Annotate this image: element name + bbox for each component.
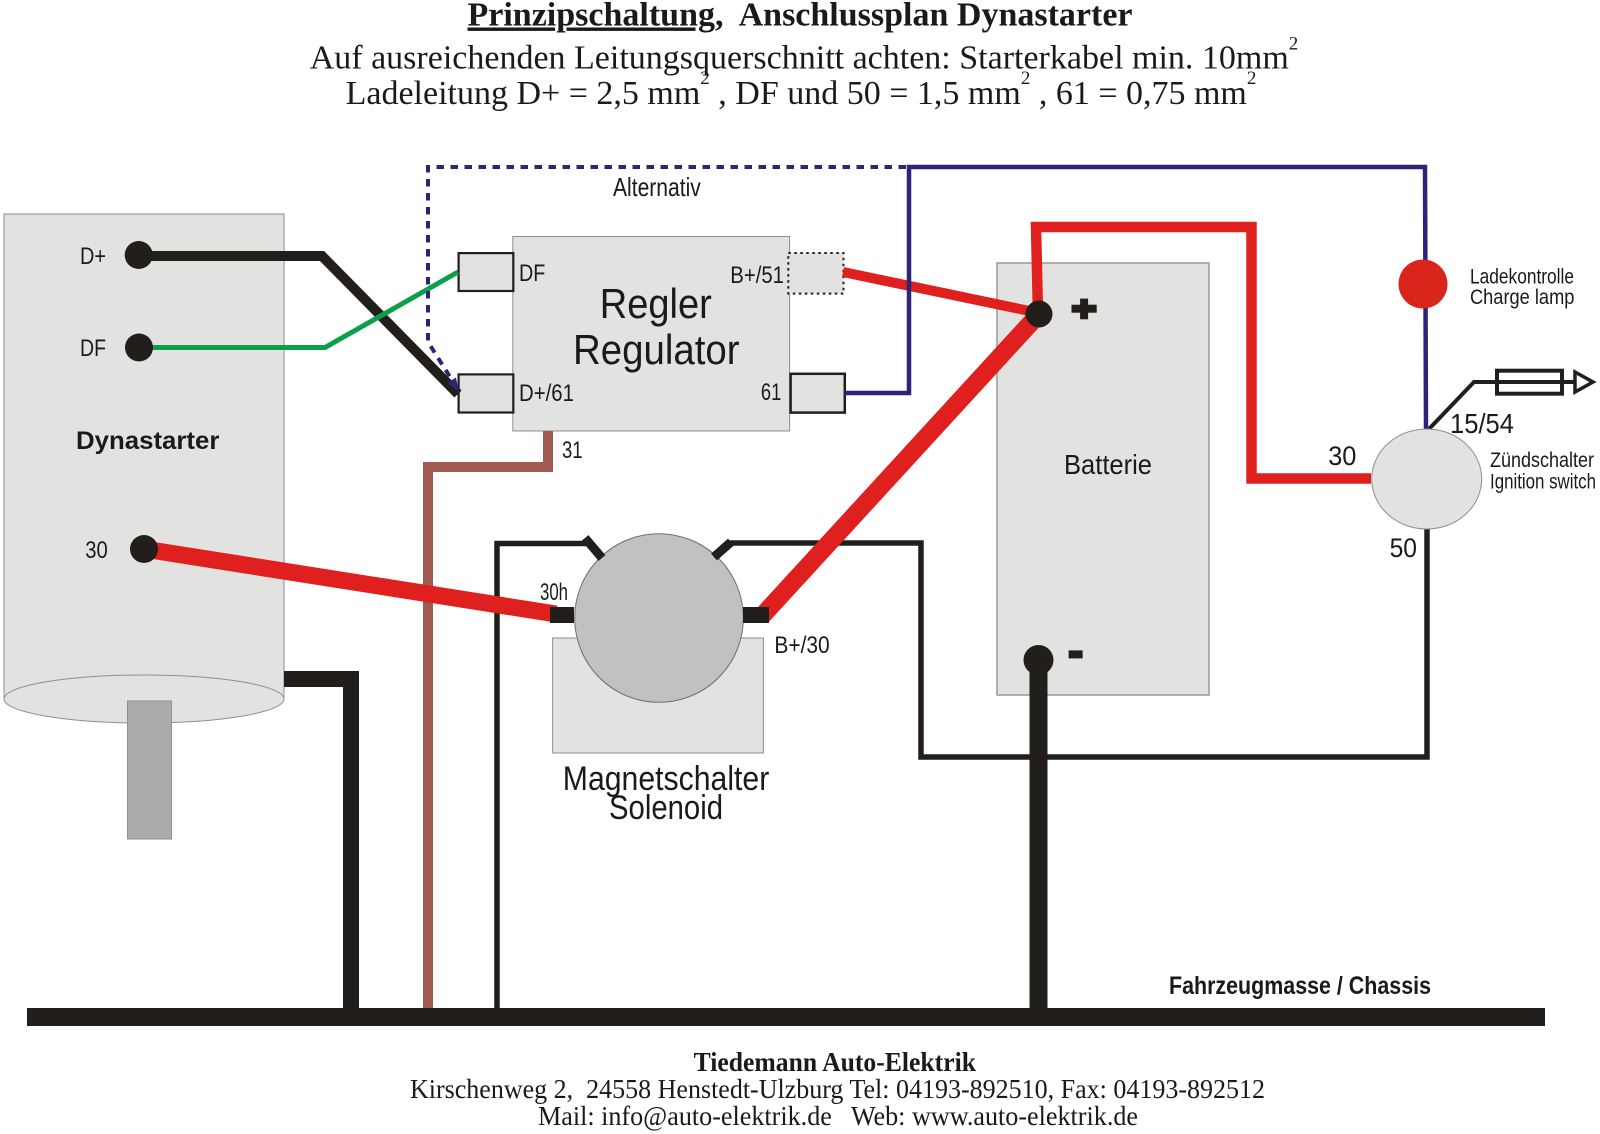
svg-text:DF: DF (80, 335, 106, 362)
svg-text:30h: 30h (540, 579, 568, 606)
svg-text:Solenoid: Solenoid (609, 789, 723, 827)
svg-text:50: 50 (1390, 533, 1417, 563)
svg-text:Tiedemann Auto-Elektrik: Tiedemann Auto-Elektrik (694, 1047, 976, 1077)
svg-text:Ignition switch: Ignition switch (1490, 471, 1596, 494)
svg-text:DF: DF (519, 260, 545, 287)
svg-text:31: 31 (562, 437, 583, 464)
svg-text:Auf ausreichenden Leitungsquer: Auf ausreichenden Leitungsquerschnitt ac… (310, 34, 1299, 77)
svg-text:61: 61 (761, 379, 781, 406)
svg-text:30: 30 (1328, 441, 1356, 471)
svg-text:Ladeleitung D+ = 2,5 mm2 , DF: Ladeleitung D+ = 2,5 mm2 , DF und 50 = 1… (346, 68, 1257, 112)
svg-text:15/54: 15/54 (1450, 408, 1514, 439)
svg-text:D+/61: D+/61 (519, 380, 574, 407)
svg-text:B+/51: B+/51 (730, 262, 784, 289)
svg-text:Prinzipschaltung, Anschlusspl: Prinzipschaltung, Anschlussplan Dynastar… (468, 0, 1133, 34)
svg-text:Batterie: Batterie (1064, 449, 1152, 480)
svg-text:Fahrzeugmasse / Chassis: Fahrzeugmasse / Chassis (1169, 972, 1431, 1000)
svg-text:Dynastarter: Dynastarter (76, 427, 220, 455)
svg-text:Regler: Regler (600, 280, 712, 327)
svg-text:Charge lamp: Charge lamp (1470, 286, 1574, 309)
svg-text:Zündschalter: Zündschalter (1490, 449, 1594, 472)
svg-text:Alternativ: Alternativ (613, 172, 701, 202)
svg-text:Kirschenweg 2, 24558 Henstedt: Kirschenweg 2, 24558 Henstedt-Ulzburg Te… (410, 1074, 1265, 1104)
svg-text:Regulator: Regulator (573, 326, 740, 373)
svg-text:D+: D+ (80, 243, 106, 270)
svg-text:B+/30: B+/30 (774, 632, 829, 659)
svg-text:30: 30 (85, 537, 108, 564)
svg-text:Mail: info@auto-elektrik.de: Mail: info@auto-elektrik.de Web: www.aut… (538, 1101, 1138, 1131)
